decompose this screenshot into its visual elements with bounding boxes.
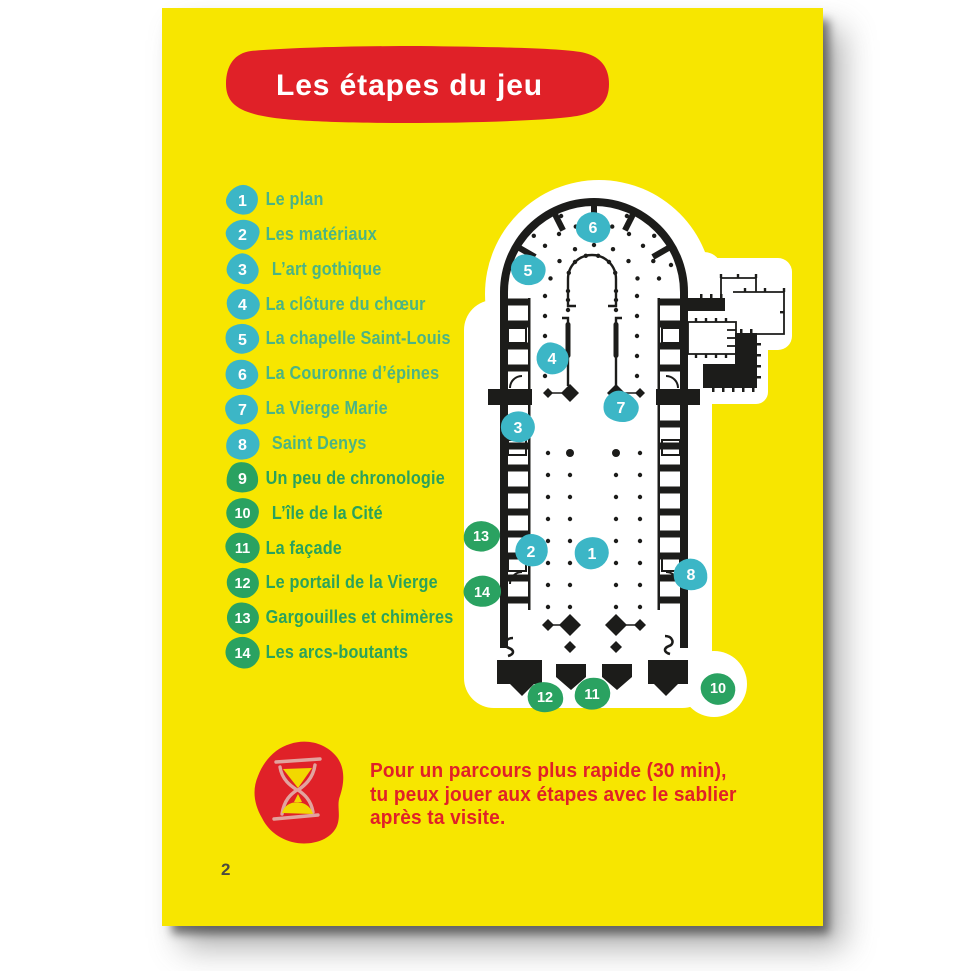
svg-text:6: 6 [238, 367, 247, 384]
svg-text:4: 4 [238, 297, 247, 314]
svg-text:5: 5 [238, 332, 247, 349]
svg-text:12: 12 [537, 690, 553, 706]
svg-text:3: 3 [514, 420, 523, 437]
svg-text:14: 14 [474, 585, 490, 601]
svg-text:14: 14 [234, 646, 250, 662]
svg-text:11: 11 [235, 541, 250, 557]
svg-text:12: 12 [234, 576, 250, 592]
svg-text:6: 6 [589, 220, 598, 237]
svg-text:11: 11 [584, 687, 599, 703]
svg-text:2: 2 [527, 544, 536, 561]
svg-text:13: 13 [473, 529, 489, 545]
svg-text:10: 10 [710, 681, 726, 697]
svg-text:1: 1 [588, 546, 597, 563]
svg-text:7: 7 [617, 400, 626, 417]
svg-text:9: 9 [238, 471, 247, 488]
svg-text:5: 5 [524, 263, 533, 280]
svg-text:4: 4 [548, 351, 557, 368]
svg-text:8: 8 [687, 567, 696, 584]
svg-text:8: 8 [238, 436, 247, 453]
svg-text:7: 7 [238, 401, 247, 418]
svg-text:2: 2 [238, 227, 247, 244]
svg-text:13: 13 [234, 611, 250, 627]
svg-text:10: 10 [234, 506, 250, 522]
svg-text:3: 3 [238, 262, 247, 279]
svg-text:1: 1 [238, 192, 247, 209]
